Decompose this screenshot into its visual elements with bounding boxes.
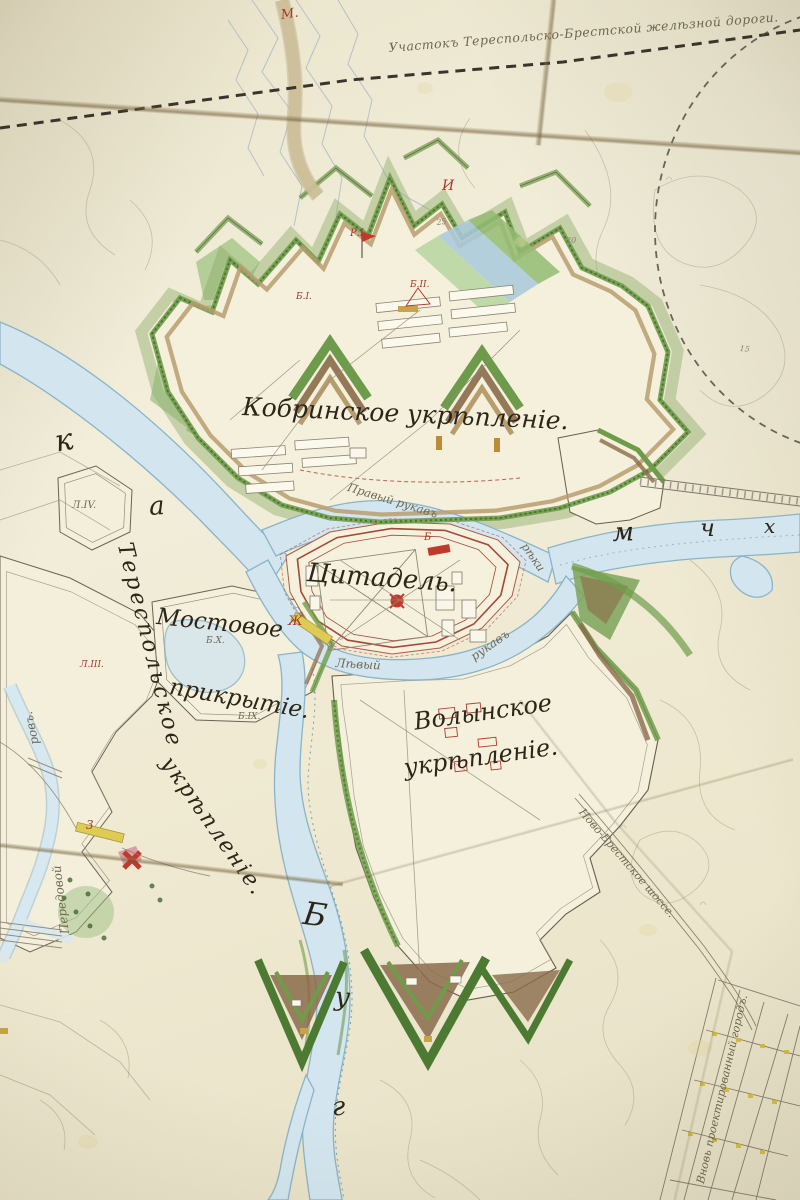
river-letter-a: а bbox=[148, 491, 166, 522]
mark-lunette-4: Л.IV. bbox=[72, 500, 96, 511]
red-mark-l3: Л.III. bbox=[80, 660, 104, 670]
river-letter-m: м bbox=[612, 517, 635, 548]
mark-b9: Б.IX. bbox=[238, 712, 260, 722]
river-letter-ch: ч bbox=[700, 514, 715, 542]
river-letter-u: у bbox=[334, 982, 351, 1013]
red-mark-3: 3 bbox=[86, 818, 94, 832]
red-mark-r1: Р.I. bbox=[350, 228, 367, 239]
red-mark-zh: Ж bbox=[288, 614, 303, 629]
red-mark-b1: Б.I. bbox=[296, 292, 312, 302]
river-letter-kh: х bbox=[764, 514, 775, 538]
contour-number-15: 15 bbox=[739, 344, 750, 354]
contour-number-20: 20 bbox=[566, 236, 576, 245]
red-mark-b-bridge: Б bbox=[424, 532, 431, 543]
red-mark-i: И bbox=[442, 178, 454, 194]
red-mark-m: М. bbox=[280, 6, 299, 23]
red-mark-b2: Б.II. bbox=[410, 280, 429, 290]
fortress-map-photo: Участокъ Тереспольско-Брестской желѣзной… bbox=[0, 0, 800, 1200]
south-ravelins bbox=[0, 950, 570, 1062]
river-letter-b: Б bbox=[301, 894, 330, 935]
river-letter-g: г bbox=[332, 1092, 345, 1122]
mark-b10: Б.X. bbox=[206, 636, 225, 646]
map-artwork bbox=[0, 0, 800, 1200]
contour-number-25: 25 bbox=[436, 217, 447, 227]
label-left-river-branch: Лѣвый bbox=[335, 656, 381, 672]
